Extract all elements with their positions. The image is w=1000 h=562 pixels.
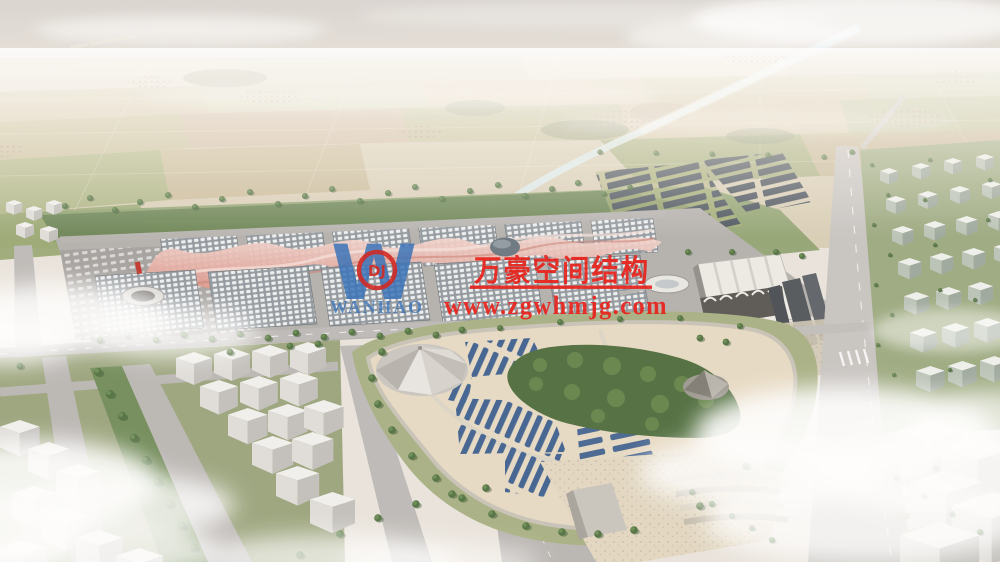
color-cast-overlay: [0, 0, 1000, 562]
scene-canvas: W DJ WANHAO 万豪空间结构 www.zgwhmjg.com: [0, 0, 1000, 562]
aerial-rendering: W DJ WANHAO 万豪空间结构 www.zgwhmjg.com: [0, 0, 1000, 562]
